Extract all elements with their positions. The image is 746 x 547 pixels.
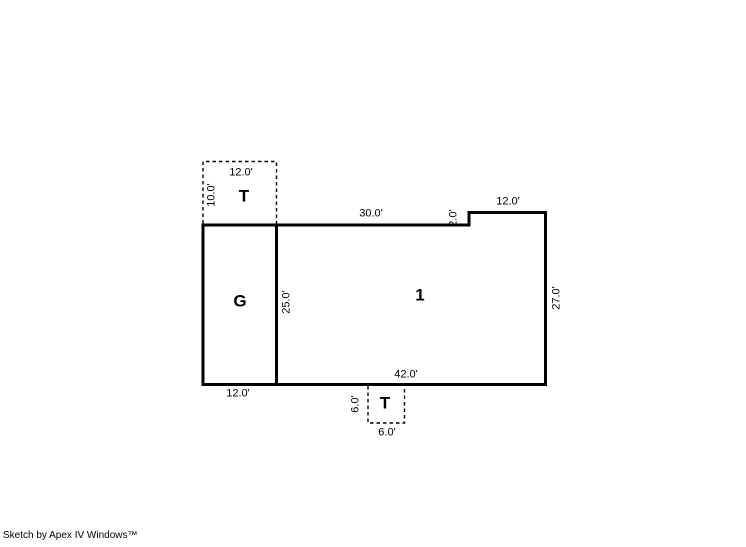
dim-label-main-top: 30.0' [359,209,383,220]
area-label-top-porch: T [239,188,249,205]
dim-label-top-porch-width: 12.0' [229,168,253,179]
dim-label-main-top-right: 12.0' [496,197,520,208]
dim-label-bottom-porch-depth: 6.0' [351,395,362,412]
floor-plan-drawing [0,0,746,547]
area-label-main: 1 [415,287,424,304]
dim-label-top-porch-depth: 10.0' [207,183,218,207]
area-label-bottom-porch: T [380,395,390,412]
main-structure-outline [203,213,546,385]
app-credit: Sketch by Apex IV Windows™ [3,530,138,542]
dim-label-main-bottom: 42.0' [394,370,418,381]
dim-label-bottom-porch-width: 6.0' [378,428,395,439]
area-label-garage: G [233,293,246,310]
dim-label-garage-depth: 25.0' [282,290,293,314]
dim-label-garage-width: 12.0' [226,389,250,400]
dim-label-jog: 2.0' [449,209,460,226]
dim-label-main-right: 27.0' [552,286,563,310]
apex-sketch-page: 12.0' 10.0' T 30.0' 2.0' 12.0' 27.0' 1 G… [0,0,746,547]
